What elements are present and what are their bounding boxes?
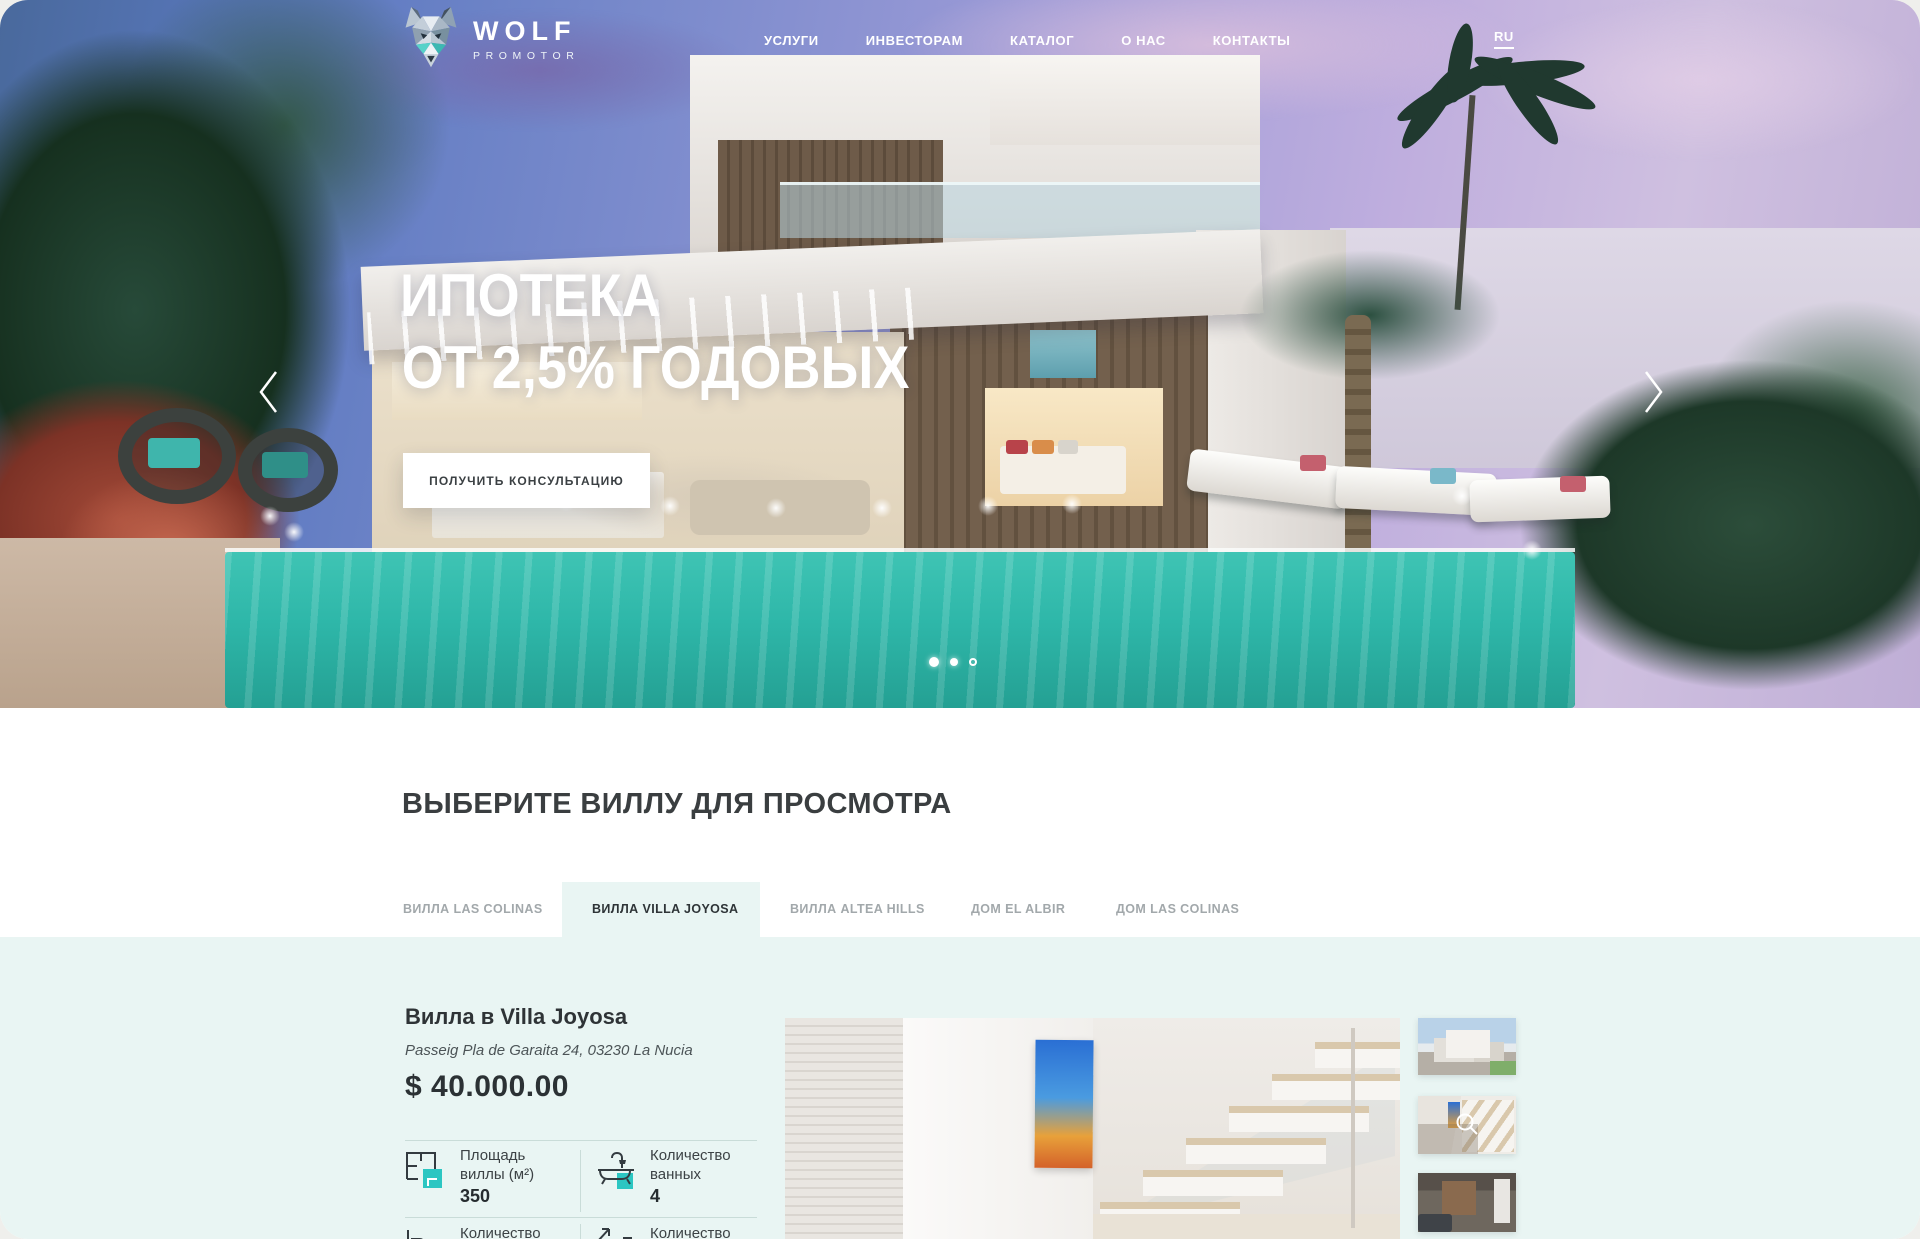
nav-item-about[interactable]: О НАС — [1121, 33, 1166, 48]
window-blinds — [785, 1018, 903, 1239]
divider — [580, 1150, 581, 1212]
stairs-icon — [594, 1222, 638, 1239]
tab-villa-las-colinas[interactable]: ВИЛЛА LAS COLINAS — [403, 882, 543, 937]
hero-title-line1: ИПОТЕКА — [400, 262, 661, 329]
spec-area-value: 350 — [460, 1187, 534, 1206]
hero-slider: WOLF PROMOTOR УСЛУГИ ИНВЕСТОРАМ КАТАЛОГ … — [0, 0, 1920, 708]
carousel-dot-1[interactable] — [929, 657, 939, 667]
spec-bathrooms: Количество ванных 4 — [650, 1146, 731, 1206]
property-photo[interactable] — [785, 1018, 1400, 1239]
spec-bathrooms-value: 4 — [650, 1187, 731, 1206]
divider — [580, 1224, 581, 1239]
bed-icon — [404, 1222, 448, 1239]
section-heading: ВЫБЕРИТЕ ВИЛЛУ ДЛЯ ПРОСМОТРА — [402, 788, 952, 821]
tab-dom-las-colinas[interactable]: ДОМ LAS COLINAS — [1116, 882, 1239, 937]
divider — [405, 1217, 757, 1218]
wolf-logo-icon — [402, 5, 460, 71]
carousel-dot-2[interactable] — [950, 658, 958, 666]
nav-item-investors[interactable]: ИНВЕСТОРАМ — [866, 33, 963, 48]
thumbnail-living-room[interactable] — [1418, 1173, 1516, 1232]
brand-tagline: PROMOTOR — [473, 50, 579, 62]
tab-dom-el-albir[interactable]: ДОМ EL ALBIR — [971, 882, 1065, 937]
hero-title: ИПОТЕКА ОТ 2,5% ГОДОВЫХ — [400, 260, 909, 404]
tab-villa-altea-hills[interactable]: ВИЛЛА ALTEA HILLS — [790, 882, 925, 937]
brand-name: WOLF — [473, 16, 579, 47]
spec-area: Площадь виллы (м²) 350 — [460, 1146, 534, 1206]
divider — [405, 1140, 757, 1141]
thumbnail-interior-staircase[interactable] — [1418, 1096, 1516, 1154]
carousel-dot-3[interactable] — [969, 658, 977, 666]
tab-villa-villa-joyosa[interactable]: ВИЛЛА VILLA JOYOSA — [592, 882, 738, 937]
property-title: Вилла в Villa Joyosa — [405, 1004, 627, 1030]
nav-item-contacts[interactable]: КОНТАКТЫ — [1213, 33, 1291, 48]
language-switcher[interactable]: RU — [1494, 29, 1514, 49]
spec-floors: Количество — [650, 1224, 731, 1239]
main-nav: УСЛУГИ ИНВЕСТОРАМ КАТАЛОГ О НАС КОНТАКТЫ — [764, 33, 1290, 48]
carousel-dots — [929, 657, 977, 667]
floorplan-icon — [404, 1148, 448, 1192]
property-price: $ 40.000.00 — [405, 1070, 569, 1104]
logo[interactable] — [402, 5, 460, 71]
pool — [225, 552, 1575, 708]
page: WOLF PROMOTOR УСЛУГИ ИНВЕСТОРАМ КАТАЛОГ … — [0, 0, 1920, 1239]
consultation-button[interactable]: ПОЛУЧИТЬ КОНСУЛЬТАЦИЮ — [403, 453, 650, 508]
property-address: Passeig Pla de Garaita 24, 03230 La Nuci… — [405, 1042, 693, 1059]
bathtub-icon — [594, 1148, 638, 1192]
hero-title-line2: ОТ 2,5% ГОДОВЫХ — [400, 332, 909, 404]
thumbnail-villa-exterior[interactable] — [1418, 1018, 1516, 1075]
zoom-icon — [1418, 1096, 1516, 1154]
prev-slide-arrow-icon[interactable] — [254, 368, 282, 416]
painting — [1034, 1040, 1093, 1169]
spec-bedrooms: Количество — [460, 1224, 541, 1239]
nav-item-catalog[interactable]: КАТАЛОГ — [1010, 33, 1074, 48]
next-slide-arrow-icon[interactable] — [1640, 368, 1668, 416]
nav-item-services[interactable]: УСЛУГИ — [764, 33, 819, 48]
